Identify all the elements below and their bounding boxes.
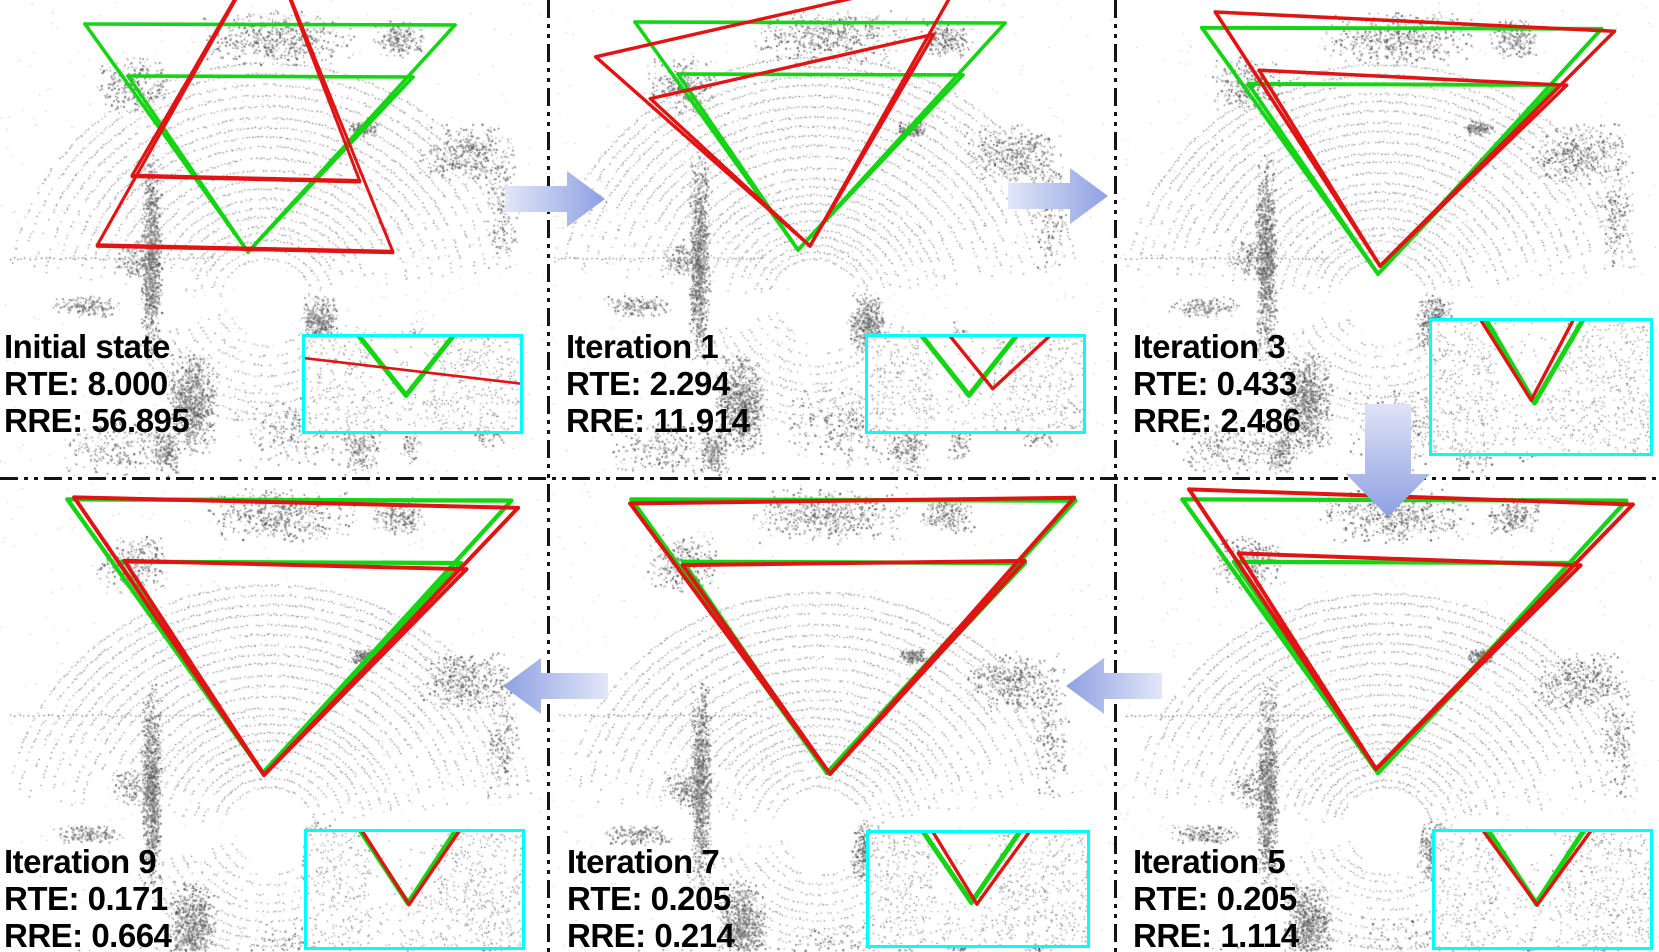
panel-iteration-1: Iteration 1 RTE: 2.294 RRE: 11.914 bbox=[548, 0, 1115, 478]
rte-metric: RTE: 0.433 bbox=[1133, 365, 1300, 402]
rte-metric: RTE: 0.205 bbox=[567, 880, 734, 917]
registration-iteration-figure: { "figure": { "panels": [ {"id": "initia… bbox=[0, 0, 1659, 952]
panel-initial-state: Initial state RTE: 8.000 RRE: 56.895 bbox=[0, 0, 548, 478]
inset-frustum-apex bbox=[1435, 832, 1650, 947]
panel-iteration-7: Iteration 7 RTE: 0.205 RRE: 0.214 bbox=[549, 478, 1116, 952]
panel-iteration-5: Iteration 5 RTE: 0.205 RRE: 1.114 bbox=[1116, 478, 1659, 952]
zoom-inset bbox=[304, 829, 525, 950]
panel-title: Iteration 5 bbox=[1133, 843, 1299, 880]
panel-caption: Iteration 9 RTE: 0.171 RRE: 0.664 bbox=[4, 843, 171, 952]
inset-frustum-apex bbox=[869, 833, 1087, 945]
panel-title: Iteration 1 bbox=[566, 328, 749, 365]
inset-frustum-apex bbox=[868, 337, 1083, 431]
panel-caption: Initial state RTE: 8.000 RRE: 56.895 bbox=[4, 328, 189, 439]
zoom-inset bbox=[302, 334, 523, 434]
panel-title: Iteration 3 bbox=[1133, 328, 1300, 365]
zoom-inset bbox=[866, 830, 1090, 948]
rre-metric: RRE: 0.214 bbox=[567, 917, 734, 952]
rte-metric: RTE: 0.205 bbox=[1133, 880, 1299, 917]
panel-title: Iteration 7 bbox=[567, 843, 734, 880]
panel-caption: Iteration 7 RTE: 0.205 RRE: 0.214 bbox=[567, 843, 734, 952]
zoom-inset bbox=[1429, 318, 1653, 456]
rre-metric: RRE: 2.486 bbox=[1133, 402, 1300, 439]
panel-caption: Iteration 3 RTE: 0.433 RRE: 2.486 bbox=[1133, 328, 1300, 439]
inset-frustum-apex bbox=[305, 337, 520, 431]
panel-title: Initial state bbox=[4, 328, 189, 365]
panel-caption: Iteration 1 RTE: 2.294 RRE: 11.914 bbox=[566, 328, 749, 439]
panel-title: Iteration 9 bbox=[4, 843, 171, 880]
panel-caption: Iteration 5 RTE: 0.205 RRE: 1.114 bbox=[1133, 843, 1299, 952]
rte-metric: RTE: 0.171 bbox=[4, 880, 171, 917]
rte-metric: RTE: 2.294 bbox=[566, 365, 749, 402]
rre-metric: RRE: 0.664 bbox=[4, 917, 171, 952]
rre-metric: RRE: 1.114 bbox=[1133, 917, 1299, 952]
zoom-inset bbox=[1432, 829, 1653, 950]
inset-frustum-apex bbox=[307, 832, 522, 947]
panel-iteration-9: Iteration 9 RTE: 0.171 RRE: 0.664 bbox=[0, 478, 549, 952]
rre-metric: RRE: 56.895 bbox=[4, 402, 189, 439]
zoom-inset bbox=[865, 334, 1086, 434]
rte-metric: RTE: 8.000 bbox=[4, 365, 189, 402]
inset-frustum-apex bbox=[1432, 321, 1650, 453]
rre-metric: RRE: 11.914 bbox=[566, 402, 749, 439]
panel-iteration-3: Iteration 3 RTE: 0.433 RRE: 2.486 bbox=[1115, 0, 1659, 478]
